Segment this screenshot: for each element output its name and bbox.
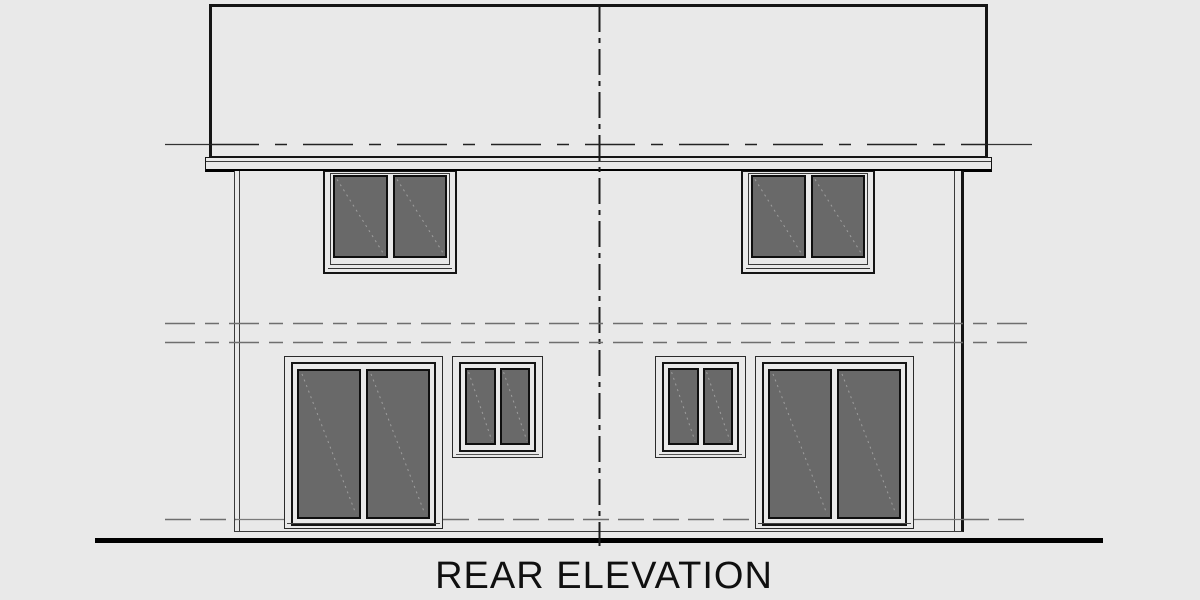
door-glazing (768, 369, 901, 519)
glass-reflection-line (299, 371, 359, 517)
glass-reflection-line (368, 371, 428, 517)
glass-reflection-line (467, 370, 494, 443)
glass-pane (465, 368, 496, 445)
window-glazing (333, 175, 447, 258)
window-glazing (751, 175, 865, 258)
glass-pane (768, 369, 832, 519)
window-sill-line (746, 268, 870, 269)
glass-reflection-line (770, 371, 830, 517)
glass-pane (500, 368, 531, 445)
glass-reflection-line (670, 370, 697, 443)
fascia-band (205, 157, 992, 172)
drawing-title: REAR ELEVATION (304, 556, 904, 596)
glass-reflection-line (753, 177, 804, 256)
window-sill-line (659, 454, 742, 455)
glass-reflection-line (705, 370, 732, 443)
door-glazing (297, 369, 430, 519)
upper-window-right (741, 171, 875, 274)
glass-pane (751, 175, 806, 258)
glass-reflection-line (839, 371, 899, 517)
window-sill-line (456, 454, 539, 455)
window-sill-line (328, 268, 452, 269)
door-sill-line (287, 523, 440, 524)
elevation-drawing: REAR ELEVATION (0, 0, 1200, 600)
glass-pane (668, 368, 699, 445)
wall-corner-line-left (239, 171, 240, 531)
small-window-left (452, 356, 543, 458)
door-sill-line (758, 523, 911, 524)
small-window-right (655, 356, 746, 458)
glass-pane (703, 368, 734, 445)
roof (209, 4, 988, 157)
fascia-trim-line (206, 161, 991, 162)
sliding-door-right (755, 356, 914, 529)
glass-reflection-line (813, 177, 864, 256)
sliding-door-left (284, 356, 443, 529)
glass-pane (811, 175, 866, 258)
glass-pane (333, 175, 388, 258)
ground-line (95, 538, 1103, 543)
glass-pane (366, 369, 430, 519)
glass-pane (297, 369, 361, 519)
glass-pane (837, 369, 901, 519)
upper-window-left (323, 171, 457, 274)
wall-corner-line-right (954, 171, 955, 531)
glass-reflection-line (502, 370, 529, 443)
glass-reflection-line (335, 177, 386, 256)
window-glazing (465, 368, 530, 445)
glass-pane (393, 175, 448, 258)
window-glazing (668, 368, 733, 445)
glass-reflection-line (395, 177, 446, 256)
